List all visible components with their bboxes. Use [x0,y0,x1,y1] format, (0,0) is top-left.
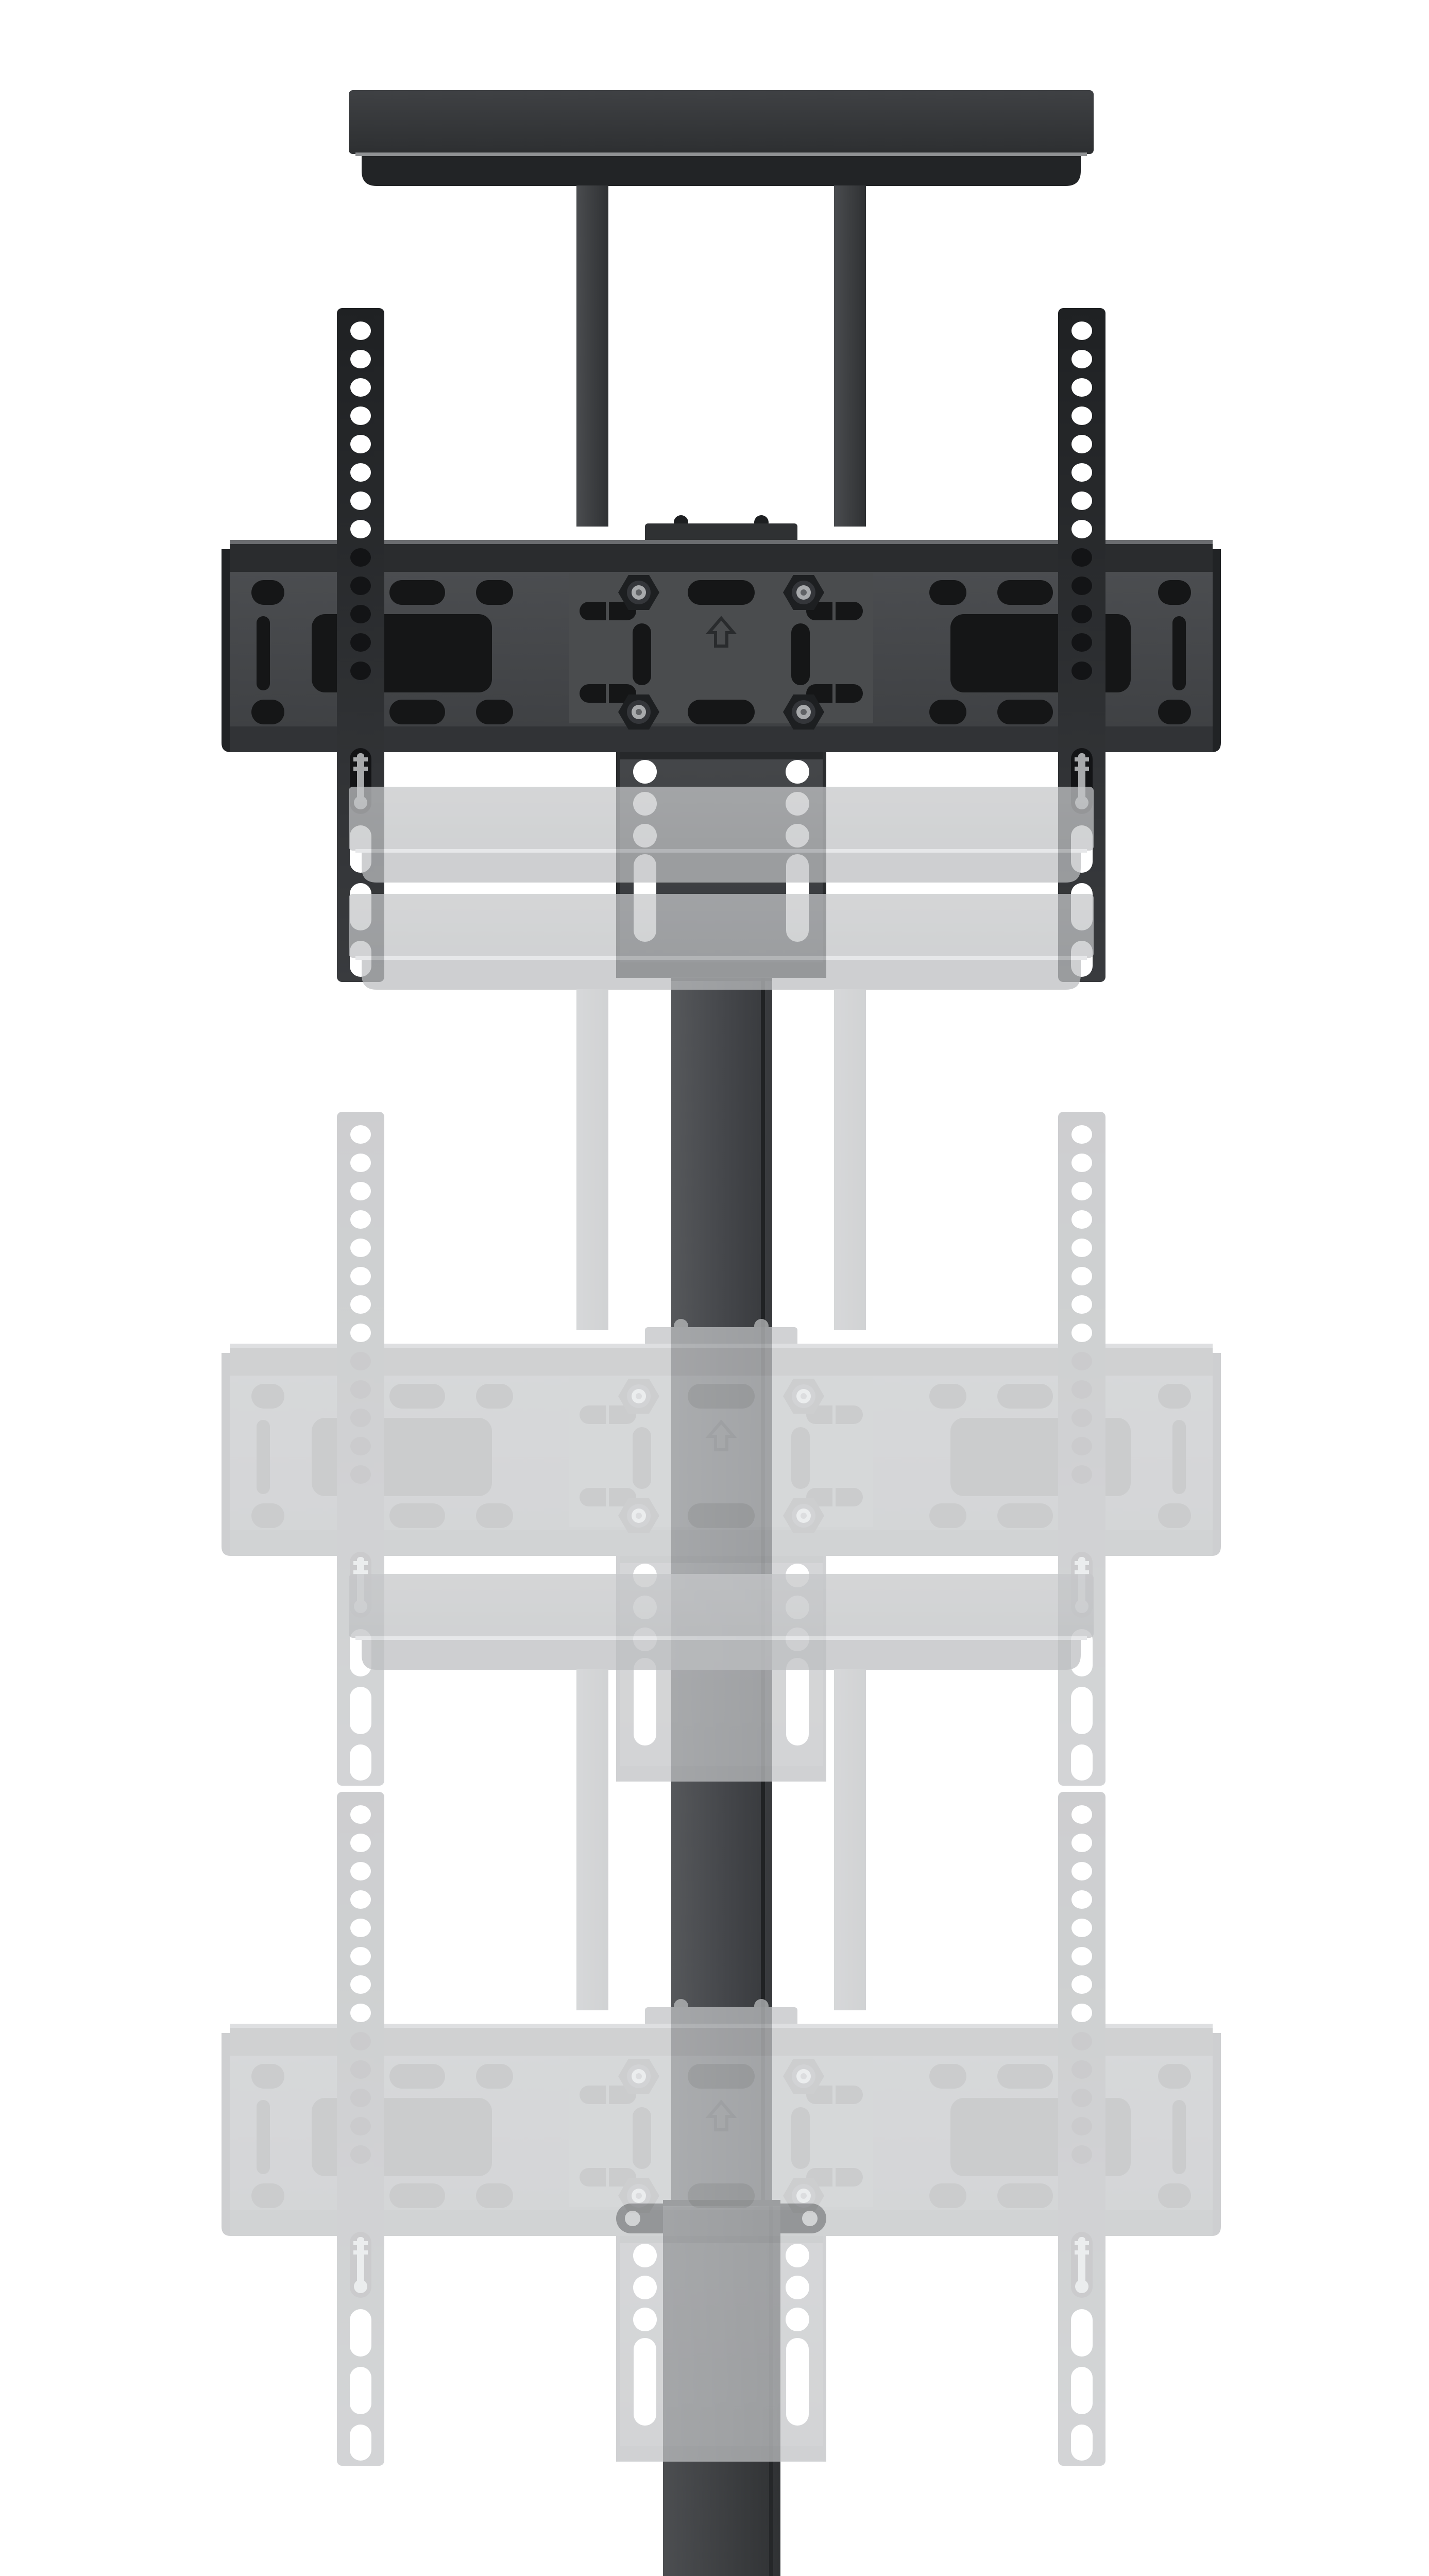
tv-lift-mount-illustration [0,0,1429,2576]
product-photo [0,0,1429,2576]
ghost-lid-intermediate [349,787,1094,883]
